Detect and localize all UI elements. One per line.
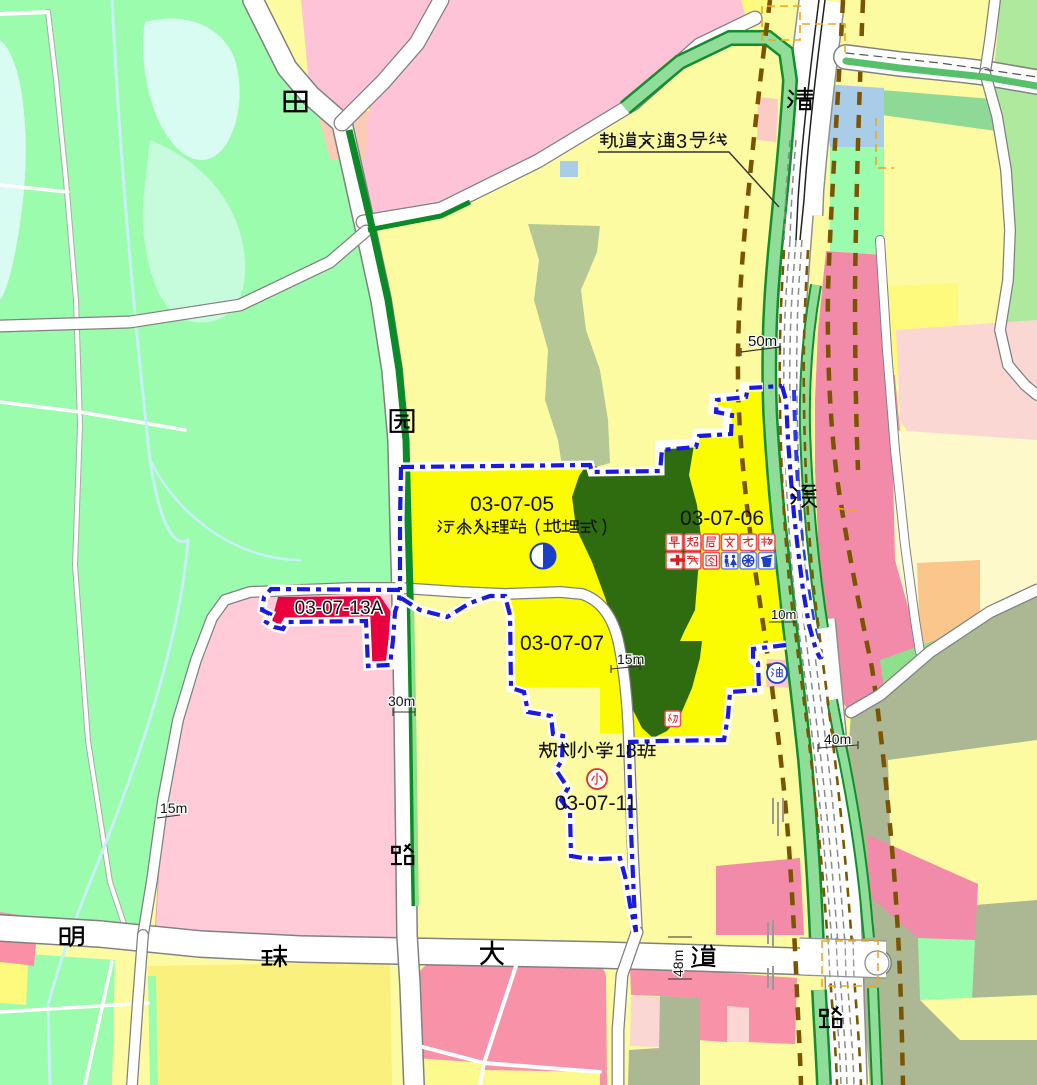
svg-text:03-07-07: 03-07-07 — [520, 632, 604, 655]
svg-text:10m: 10m — [771, 607, 796, 622]
svg-text:15m: 15m — [160, 800, 187, 816]
svg-text:18: 18 — [615, 740, 637, 762]
svg-text:03-07-05: 03-07-05 — [470, 493, 554, 516]
svg-text:48m: 48m — [670, 950, 686, 977]
svg-text:3: 3 — [676, 131, 687, 153]
svg-text:03-07-06: 03-07-06 — [680, 507, 764, 530]
svg-text:40m: 40m — [824, 731, 851, 747]
svg-text:03-07-11: 03-07-11 — [555, 792, 638, 815]
svg-text:30m: 30m — [388, 693, 415, 709]
svg-text:03-07-13A: 03-07-13A — [295, 598, 384, 619]
